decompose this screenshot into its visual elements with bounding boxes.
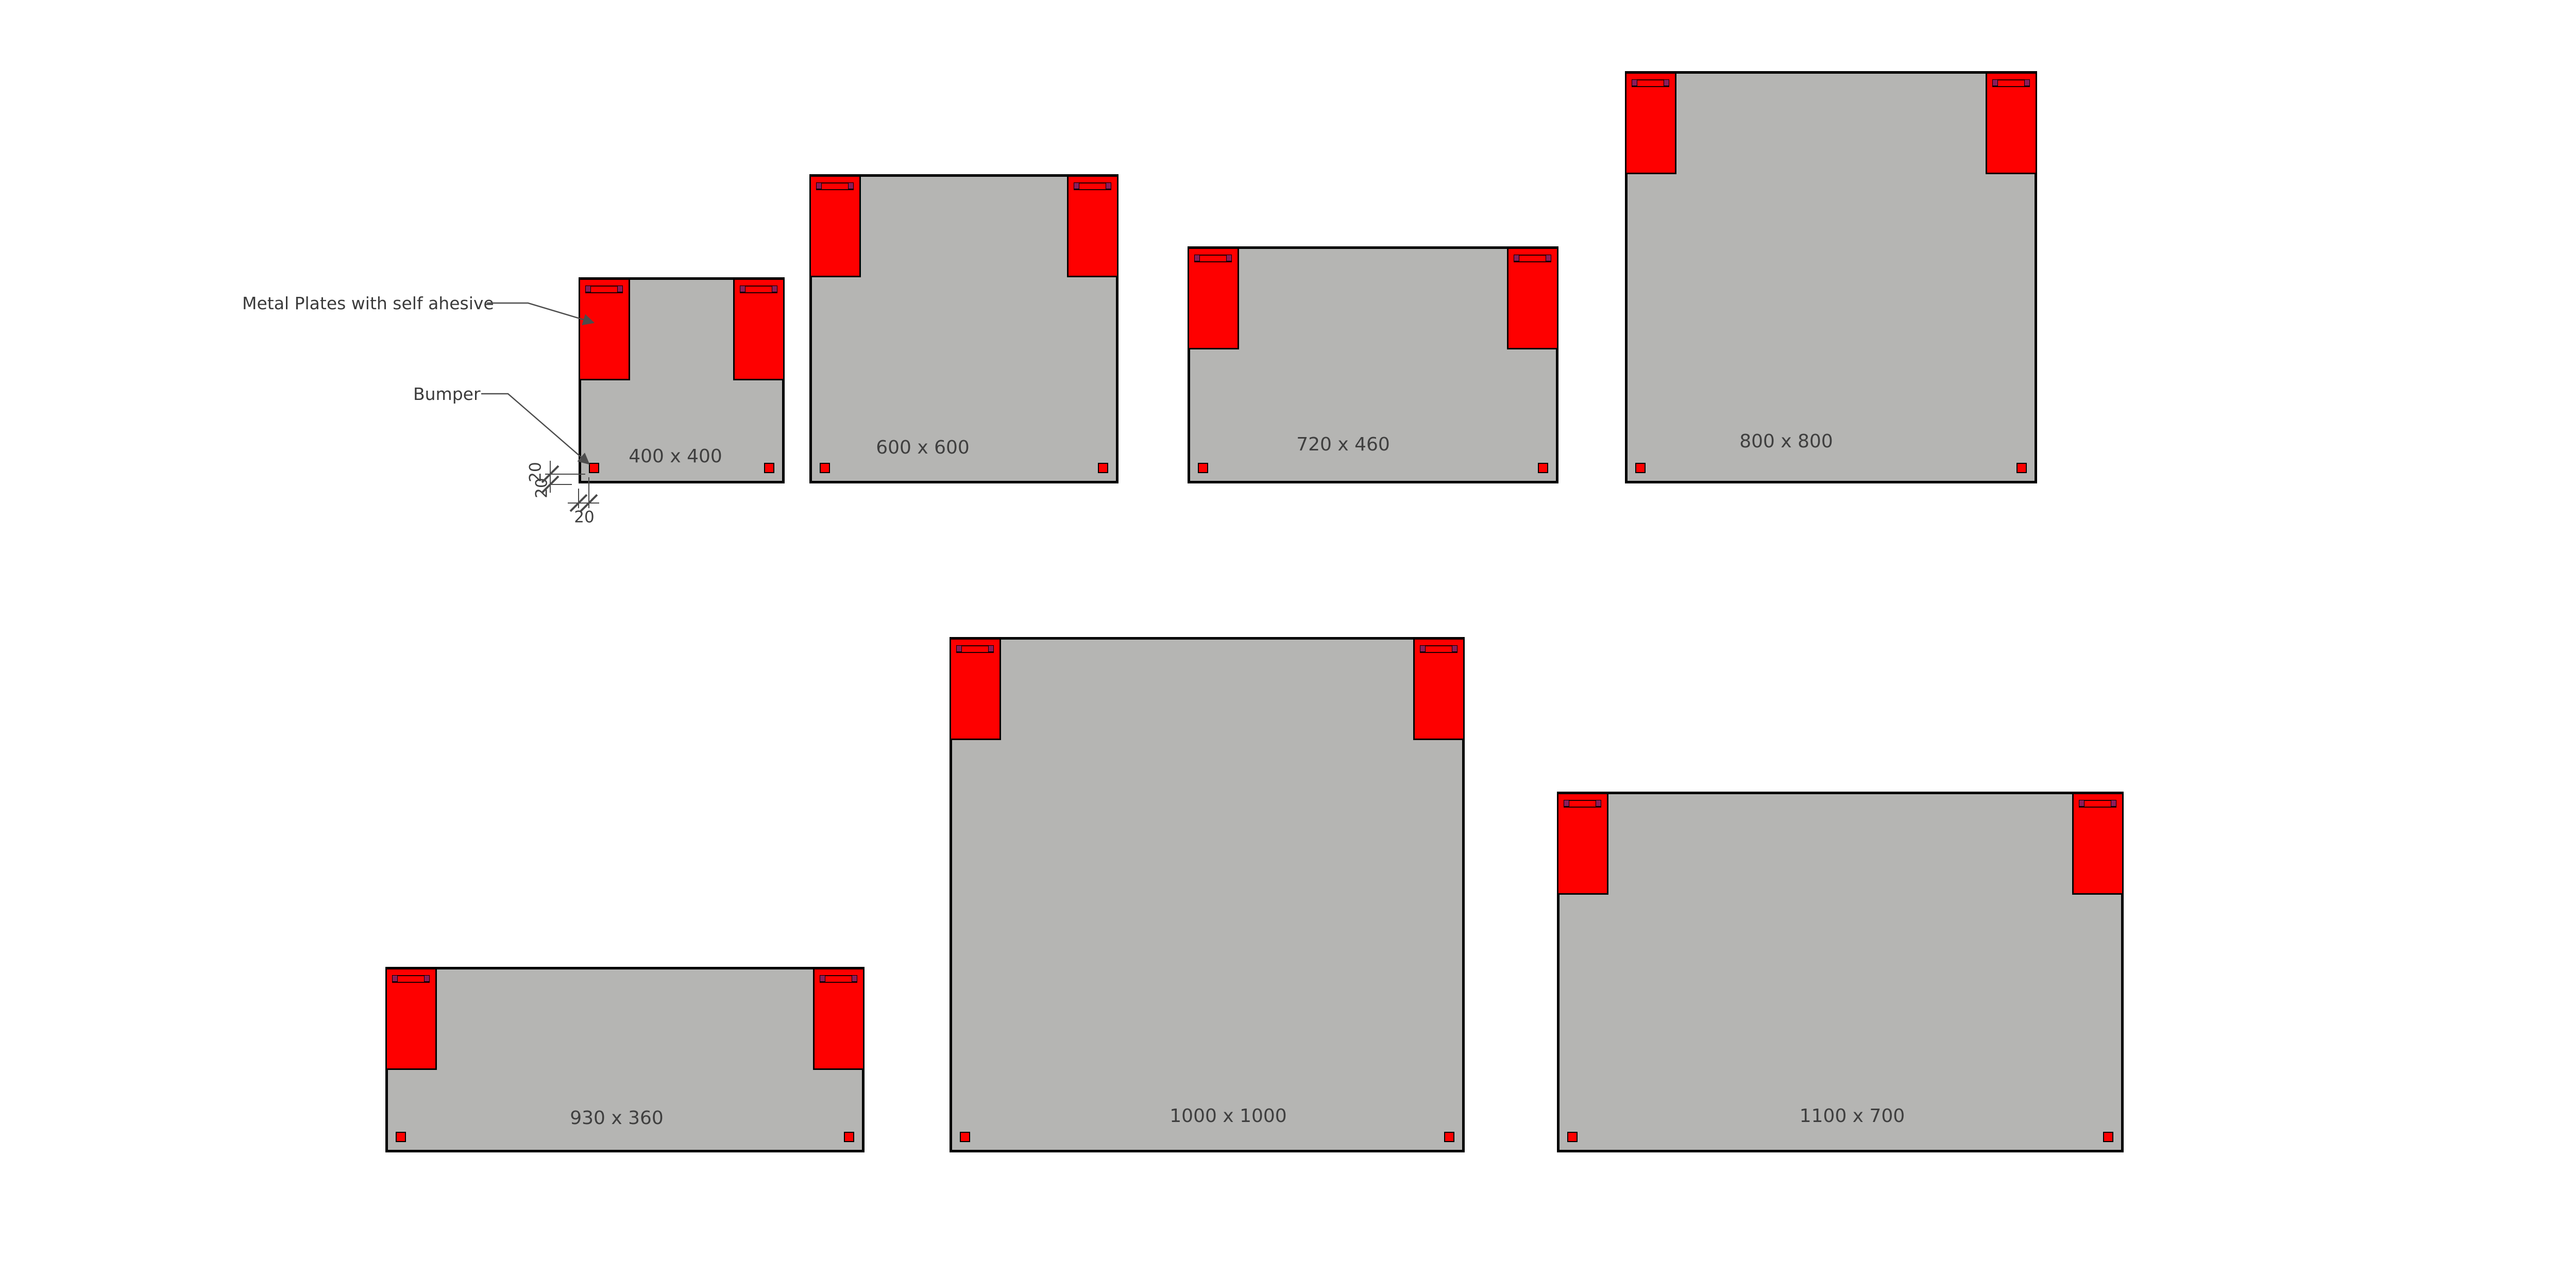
bumper-bottom-right bbox=[844, 1132, 854, 1142]
metal-plate-top-left bbox=[809, 174, 861, 277]
panel-600x600: 600 x 600 bbox=[809, 174, 1118, 483]
bumper-bottom-right bbox=[1538, 463, 1548, 473]
adhesive-slot bbox=[2079, 800, 2116, 808]
bumper-bottom-right bbox=[2103, 1132, 2113, 1142]
metal-plate-top-left bbox=[1557, 792, 1608, 895]
panel-size-label: 1100 x 700 bbox=[1800, 1107, 1905, 1126]
adhesive-slot bbox=[1564, 800, 1601, 808]
panel-1000x1000: 1000 x 1000 bbox=[950, 637, 1465, 1152]
adhesive-slot bbox=[1632, 79, 1669, 87]
bumper-bottom-left bbox=[1198, 463, 1208, 473]
panel-400x400: 400 x 400 bbox=[579, 277, 785, 483]
panel-size-label: 600 x 600 bbox=[876, 439, 970, 457]
bumper-bottom-left bbox=[820, 463, 830, 473]
bumper-bottom-left bbox=[1567, 1132, 1578, 1142]
adhesive-slot bbox=[1420, 645, 1458, 653]
metal-plate-top-left bbox=[385, 967, 437, 1070]
adhesive-slot bbox=[956, 645, 994, 653]
metal-plate-top-right bbox=[1507, 246, 1558, 349]
drawing-canvas: 400 x 400600 x 600720 x 460800 x 800930 … bbox=[0, 0, 2576, 1273]
panel-720x460: 720 x 460 bbox=[1188, 246, 1558, 483]
adhesive-slot bbox=[1074, 182, 1111, 190]
panel-size-label: 1000 x 1000 bbox=[1170, 1107, 1286, 1126]
adhesive-slot bbox=[585, 286, 623, 293]
bumper-bottom-right bbox=[1444, 1132, 1454, 1142]
bumper-bottom-right bbox=[1098, 463, 1108, 473]
adhesive-slot bbox=[1194, 255, 1232, 262]
panel-size-label: 930 x 360 bbox=[570, 1109, 664, 1128]
metal-plate-top-right bbox=[1413, 637, 1465, 740]
metal-plate-top-right bbox=[1067, 174, 1118, 277]
adhesive-slot bbox=[820, 975, 857, 983]
adhesive-slot bbox=[1992, 79, 2030, 87]
bumper-bottom-right bbox=[764, 463, 774, 473]
metal-plate-top-right bbox=[733, 277, 785, 380]
bumper-bottom-left bbox=[589, 463, 599, 473]
metal-plate-top-left bbox=[1625, 71, 1676, 174]
bumper-bottom-left bbox=[1635, 463, 1646, 473]
panel-1100x700: 1100 x 700 bbox=[1557, 792, 2124, 1152]
metal-plate-top-left bbox=[579, 277, 630, 380]
bumper-leader-line bbox=[481, 394, 589, 464]
metal-plates-leader-line bbox=[487, 303, 594, 323]
adhesive-slot bbox=[740, 286, 777, 293]
panel-930x360: 930 x 360 bbox=[385, 967, 865, 1152]
metal-plate-top-right bbox=[813, 967, 865, 1070]
bumper-bottom-left bbox=[960, 1132, 970, 1142]
panel-size-label: 800 x 800 bbox=[1739, 432, 1833, 451]
adhesive-slot bbox=[392, 975, 430, 983]
panel-800x800: 800 x 800 bbox=[1625, 71, 2037, 483]
metal-plates-label: Metal Plates with self ahesive bbox=[242, 295, 494, 312]
metal-plate-top-right bbox=[1986, 71, 2037, 174]
bumper-label: Bumper bbox=[413, 386, 481, 403]
bumper-bottom-left bbox=[396, 1132, 406, 1142]
adhesive-slot bbox=[1514, 255, 1551, 262]
metal-plate-top-right bbox=[2072, 792, 2124, 895]
metal-plate-top-left bbox=[950, 637, 1001, 740]
adhesive-slot bbox=[816, 182, 854, 190]
panel-size-label: 720 x 460 bbox=[1296, 435, 1390, 454]
bumper-bottom-right bbox=[2016, 463, 2027, 473]
dimension-side-offset: 20 bbox=[574, 510, 594, 526]
panel-size-label: 400 x 400 bbox=[629, 447, 722, 466]
metal-plate-top-left bbox=[1188, 246, 1239, 349]
dimension-bottom-offset: 20 bbox=[534, 478, 550, 498]
